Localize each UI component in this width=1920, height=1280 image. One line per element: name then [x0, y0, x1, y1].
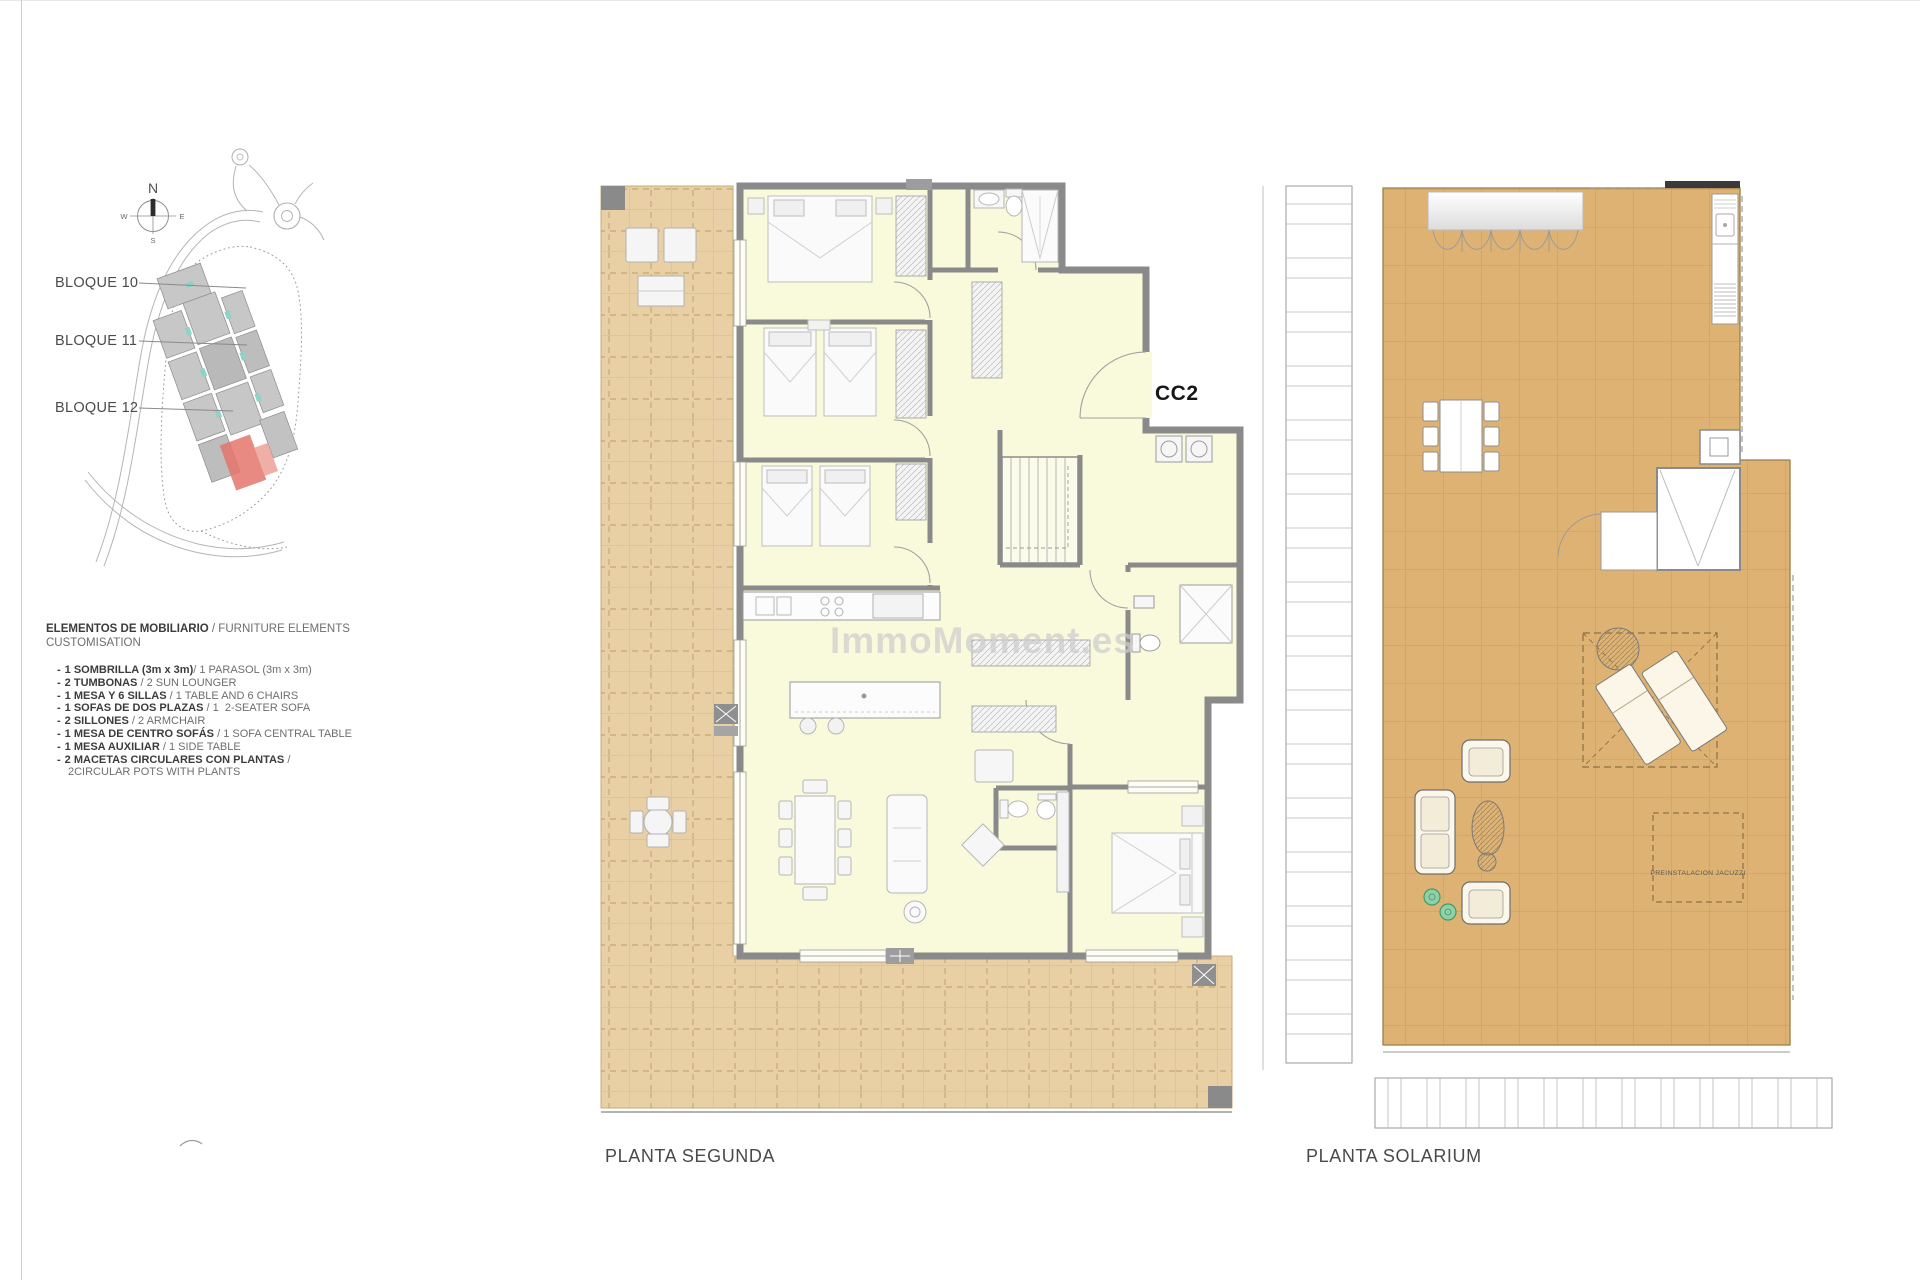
- jacuzzi-note: PREINSTALACION JACUZZI: [1650, 870, 1745, 877]
- stool: [800, 718, 816, 734]
- site-key-plan: N W E S: [30, 130, 340, 590]
- bedroom-1: [748, 196, 892, 282]
- chair: [1423, 402, 1438, 421]
- highlighted-unit: [220, 435, 266, 491]
- chair: [673, 811, 686, 833]
- plant-pot: [1440, 904, 1456, 920]
- chair: [630, 811, 643, 833]
- sofa-central-table: [1472, 801, 1504, 855]
- corner-marker: [1208, 1086, 1232, 1108]
- solarium-dining-set: [1423, 400, 1499, 472]
- furniture-legend: ELEMENTOS DE MOBILIARIO / FURNITURE ELEM…: [46, 622, 376, 779]
- legend-item: -1 MESA AUXILIAR / 1 SIDE TABLE: [57, 741, 376, 754]
- legend-item: -1 SOMBRILLA (3m x 3m)/ 1 PARASOL (3m x …: [57, 664, 376, 677]
- nightstand: [876, 198, 892, 214]
- pergola-left-slats: [1263, 186, 1352, 1070]
- chair: [1484, 427, 1499, 446]
- legend-item: -2 MACETAS CIRCULARES CON PLANTAS /: [57, 754, 376, 767]
- stool: [828, 718, 844, 734]
- round-table: [644, 808, 672, 836]
- sun-lounger: [626, 228, 658, 262]
- armchair: [975, 750, 1013, 782]
- pergola-bottom-slats: [1375, 1078, 1832, 1128]
- legend-item: -1 MESA DE CENTRO SOFÁS / 1 SOFA CENTRAL…: [57, 728, 376, 741]
- plan-title-solarium: PLANTA SOLARIUM: [1306, 1146, 1482, 1167]
- site-roundabout-small: [232, 149, 248, 165]
- watermark: ImmoMoment.es: [830, 620, 1135, 662]
- sheet-left-rule: [21, 0, 22, 1280]
- compass-east-label: E: [179, 212, 184, 221]
- plan-title-segunda: PLANTA SEGUNDA: [605, 1146, 775, 1167]
- legend-item: -2 TUMBONAS / 2 SUN LOUNGER: [57, 677, 376, 690]
- nightstand: [1182, 917, 1203, 937]
- sheet-top-rule: [0, 0, 1920, 1]
- chair: [647, 834, 669, 847]
- compass-south-label: S: [150, 236, 155, 245]
- planta-solarium-drawing: PREINSTALACION JACUZZI: [1255, 172, 1845, 1138]
- chair: [1484, 402, 1499, 421]
- site-label-bloque-10: BLOQUE 10: [55, 275, 138, 291]
- legend-item: -1 MESA Y 6 SILLAS / 1 TABLE AND 6 CHAIR…: [57, 690, 376, 703]
- compass-north-label: N: [148, 180, 158, 196]
- chair: [1484, 452, 1499, 471]
- corner-marker: [601, 186, 625, 210]
- sun-lounger: [664, 228, 696, 262]
- sheet-mark-squiggle: [170, 1128, 220, 1158]
- chair: [647, 797, 669, 810]
- furniture-legend-heading: ELEMENTOS DE MOBILIARIO / FURNITURE ELEM…: [46, 622, 376, 650]
- floorplan-sheet: N W E S: [0, 0, 1920, 1280]
- stairs: [1002, 457, 1078, 563]
- legend-item-continuation: 2CIRCULAR POTS WITH PLANTS: [68, 766, 376, 779]
- legend-item: -1 SOFAS DE DOS PLAZAS / 1 2-SEATER SOFA: [57, 702, 376, 715]
- sofa: [887, 795, 927, 893]
- nightstand: [1182, 806, 1203, 826]
- dining-table: [795, 796, 835, 884]
- lintel: [1665, 181, 1740, 188]
- side-table: [1478, 853, 1496, 871]
- site-label-bloque-12: BLOQUE 12: [55, 400, 138, 416]
- unit-code-label: CC2: [1155, 382, 1199, 406]
- legend-item: -2 SILLONES / 2 ARMCHAIR: [57, 715, 376, 728]
- side-table: [904, 901, 926, 923]
- chair: [1423, 427, 1438, 446]
- fridge: [873, 594, 923, 618]
- compass-icon: N W E S: [120, 180, 184, 245]
- chair: [1423, 452, 1438, 471]
- kitchen-island: [790, 682, 940, 718]
- site-roundabout: [274, 203, 300, 229]
- site-label-bloque-11: BLOQUE 11: [55, 333, 137, 349]
- plant-pot: [1424, 889, 1440, 905]
- tv-cabinet: [1057, 792, 1069, 892]
- outdoor-kitchen: [1712, 194, 1738, 324]
- compass-west-label: W: [120, 212, 128, 221]
- parasol-icon: [1597, 628, 1639, 670]
- nightstand: [748, 198, 764, 214]
